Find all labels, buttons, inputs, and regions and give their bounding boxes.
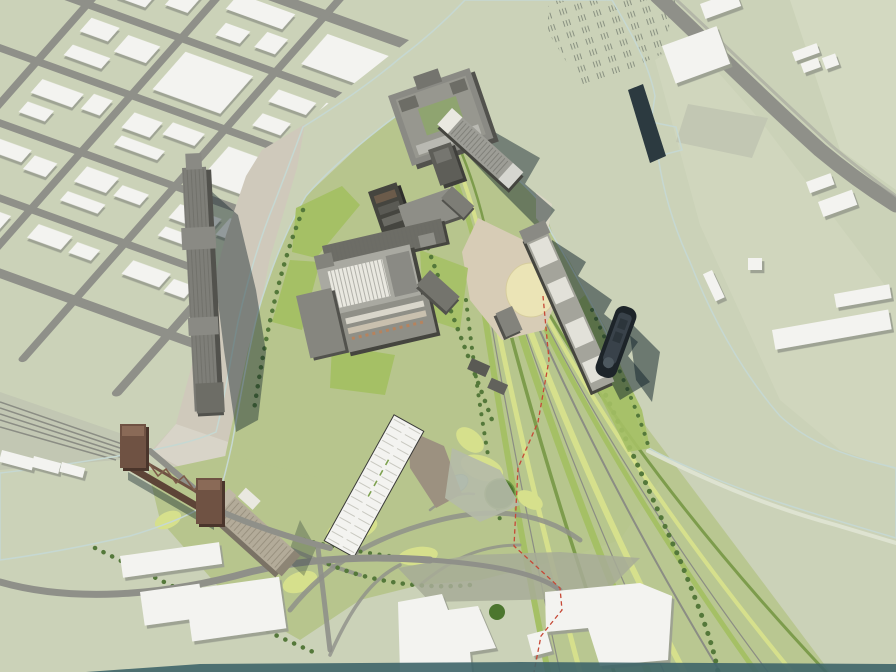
lift-tower-west [120,424,149,471]
head-house [188,316,219,336]
small-building [748,258,762,270]
tower-cap [198,480,220,490]
siteplan-rendering [0,0,896,672]
tree-grove-small [489,604,505,620]
south-tower [195,382,225,413]
rendering-canvas [0,0,896,672]
head-house [181,226,216,250]
north-tower [185,153,202,170]
tower-cap [122,426,144,436]
lift-tower-east [196,478,225,527]
